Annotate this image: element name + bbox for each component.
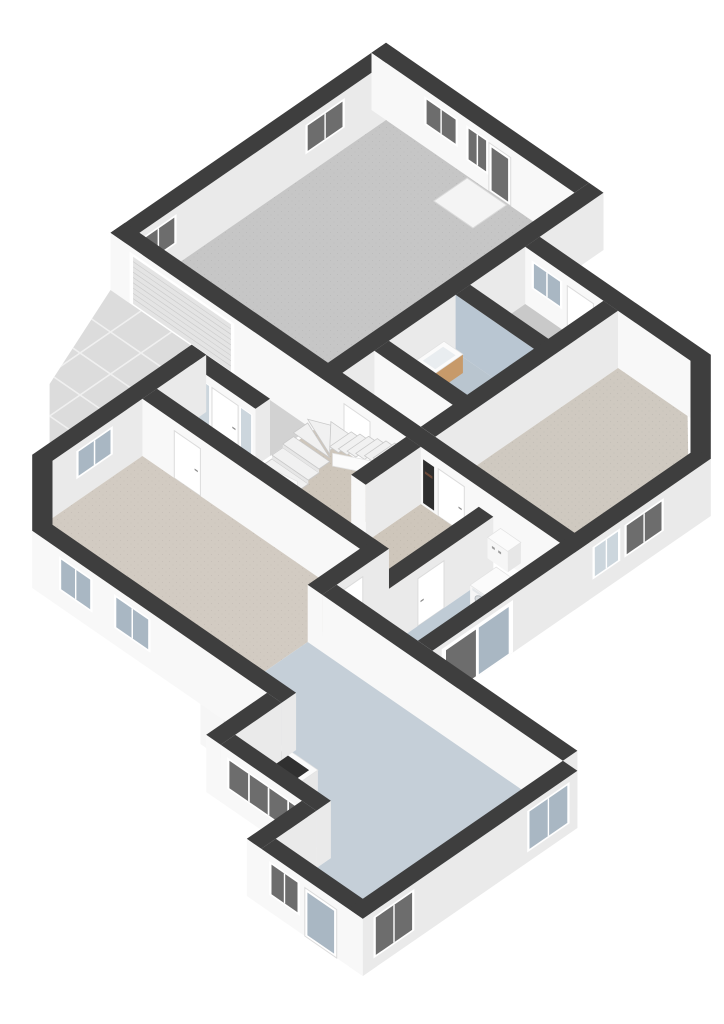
garage-ne-wall-window-mullion [477,134,479,166]
living-e-wall-end [308,585,323,652]
kitchen-jog-wall-window-mullion [248,774,250,803]
garage-nw-wall-window-mullion [324,113,325,139]
kitchen-jog-wall-window-mullion [268,787,270,816]
west-wall-window-mullion [94,440,96,465]
kitchen-tip-w-wall-end [247,839,261,906]
south-wall-meter-cupboard [423,459,434,510]
kitchen-se-wall-window-mullion [393,905,394,943]
front-wall-end [256,399,271,466]
living-sw-wall-window-mullion [75,569,76,600]
kitchen-se-wall-end [348,909,363,976]
kitchen-jog-wall-end [316,801,331,868]
wing-se-wall-window-mullion [606,539,607,569]
kitchen-nw-wall-end [206,735,221,802]
kitchen-sw-wall-window-mullion [284,873,285,904]
wing-ne-wall-window-mullion [546,272,548,297]
bedroom-corner-wall-top [691,355,711,459]
floorplan-3d-svg [0,0,724,1024]
floorplan-stage [0,0,724,1024]
living-sw-wall-end [282,693,297,760]
living-sw-wall-window-mullion [132,608,134,639]
garage-ne-wall-window-mullion [440,109,441,134]
wing-se-wall-window-mullion [643,513,644,543]
living-corner-wall-top [32,455,52,531]
kitchen-se-wall-window-mullion [548,798,549,836]
